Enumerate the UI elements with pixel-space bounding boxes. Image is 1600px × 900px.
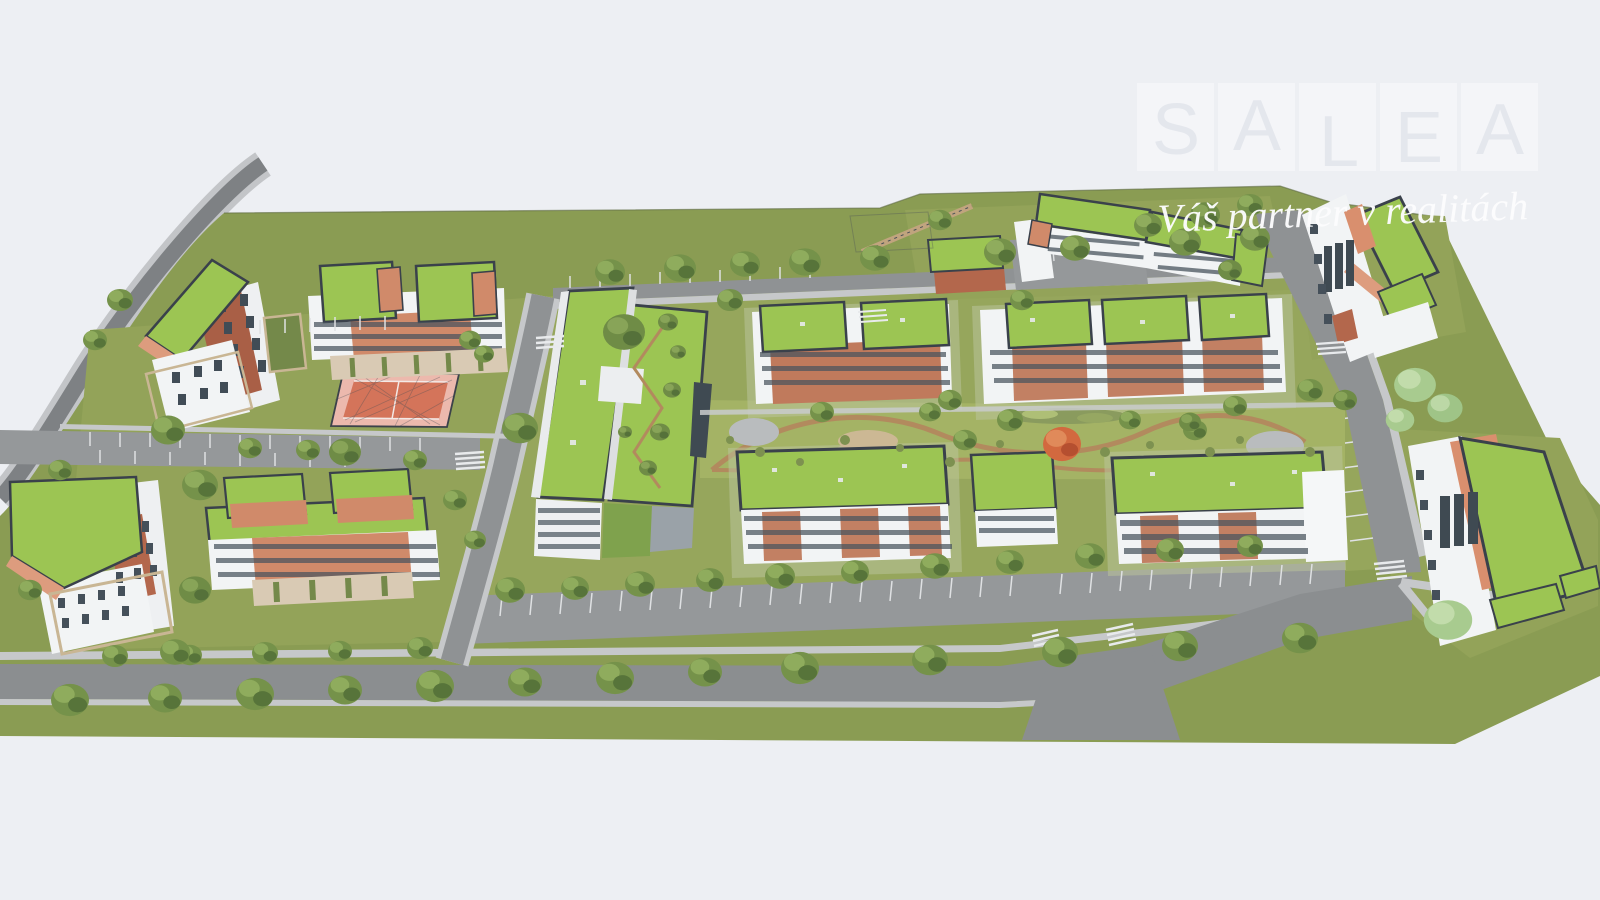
- svg-text:S: S: [1152, 90, 1200, 170]
- svg-text:L: L: [1319, 102, 1359, 182]
- svg-text:A: A: [1476, 90, 1524, 170]
- svg-text:A: A: [1233, 86, 1281, 166]
- svg-text:E: E: [1395, 98, 1443, 178]
